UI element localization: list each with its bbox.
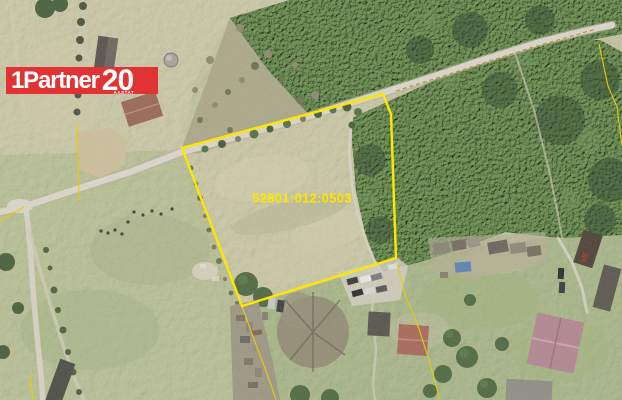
logo-anniversary-caption: AASTAT <box>114 91 135 95</box>
aerial-map: 52801:012:0503 1Partner 20 AASTAT <box>0 0 622 400</box>
cadastral-number-label: 52801:012:0503 <box>252 191 352 206</box>
logo-anniversary-badge: 20 AASTAT <box>102 67 135 94</box>
logo-brand-text: 1Partner <box>11 69 99 93</box>
partner-logo: 1Partner 20 AASTAT <box>6 67 158 94</box>
